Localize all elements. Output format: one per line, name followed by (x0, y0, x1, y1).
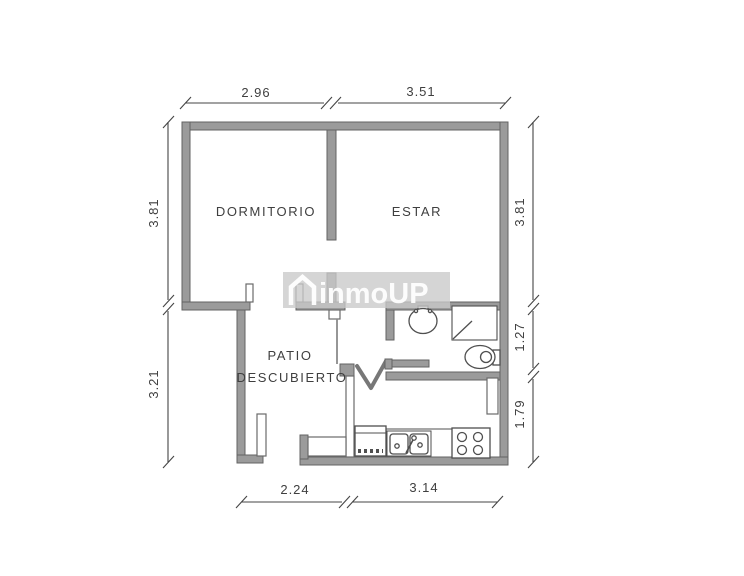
dim-top-2: 3.51 (406, 84, 435, 99)
dim-left-1: 3.81 (146, 198, 161, 227)
dim-right-1: 3.81 (512, 197, 527, 226)
burner-4 (474, 446, 483, 455)
bathroom-door-hinge (385, 359, 392, 369)
toilet-bowl (481, 352, 492, 363)
room-label-living: ESTAR (392, 204, 442, 219)
room-label-bedroom: DORMITORIO (216, 204, 316, 219)
watermark: inmoUP (283, 272, 450, 310)
shower-icon (452, 306, 497, 340)
burner-1 (458, 433, 467, 442)
kitchen-fixtures (355, 426, 490, 458)
bifold-door-icon (357, 361, 386, 388)
room-label-patio-line2: DESCUBIERTO (236, 370, 347, 385)
drain-left (395, 444, 399, 448)
room-label-patio-line1: PATIO (267, 348, 312, 363)
sink-faucet-base (412, 436, 416, 440)
jamb-patio-top (329, 310, 340, 319)
wall-right (500, 122, 508, 465)
patio-gate-leaf (257, 414, 266, 456)
floor-plan-svg: 2.96 3.51 2.24 3.14 3.81 3.21 3.81 1.27 … (0, 0, 744, 576)
dim-left-2: 3.21 (146, 369, 161, 398)
wall-kitchen-step-stub (300, 435, 308, 459)
burner-3 (458, 446, 467, 455)
sink-knob-right (428, 309, 431, 312)
floor-plan: 2.96 3.51 2.24 3.14 3.81 3.21 3.81 1.27 … (0, 0, 744, 576)
bathroom-fixtures (409, 306, 500, 369)
wall-left (182, 122, 190, 310)
wall-bath-left (386, 310, 394, 340)
stove-icon (452, 428, 490, 458)
bath-sink-icon (409, 309, 437, 334)
wall-top (182, 122, 508, 130)
dim-right-2: 1.27 (512, 322, 527, 351)
wall-bedroom-bottom-left (182, 302, 250, 310)
dim-top-1: 2.96 (241, 85, 270, 100)
wall-patio-left (237, 310, 245, 463)
water-heater (487, 378, 498, 414)
kitchen-step-counter (308, 437, 346, 456)
burner-2 (474, 433, 483, 442)
dim-bottom-1: 2.24 (280, 482, 309, 497)
dim-right-3: 1.79 (512, 399, 527, 428)
dim-bottom-2: 3.14 (409, 480, 438, 495)
watermark-logo-text: inmoUP (319, 278, 429, 310)
wall-divider-bedroom-living (327, 130, 336, 240)
bathroom-door-leaf (388, 360, 429, 367)
wall-bath-bottom (386, 372, 500, 380)
jamb-patio-door-left (246, 284, 253, 302)
drain-right (418, 443, 422, 447)
kitchen-left-partition (346, 376, 354, 457)
